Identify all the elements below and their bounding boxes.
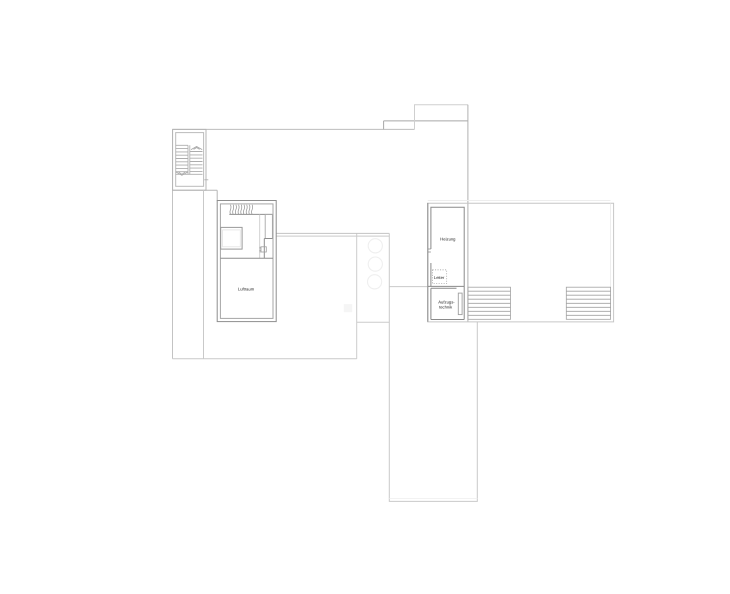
svg-text:Leiter: Leiter	[434, 275, 444, 280]
svg-text:Heizung: Heizung	[440, 237, 455, 242]
svg-text:Aufzugs-: Aufzugs-	[438, 300, 454, 305]
svg-text:Luftraum: Luftraum	[238, 287, 254, 292]
svg-text:technik: technik	[439, 305, 452, 310]
